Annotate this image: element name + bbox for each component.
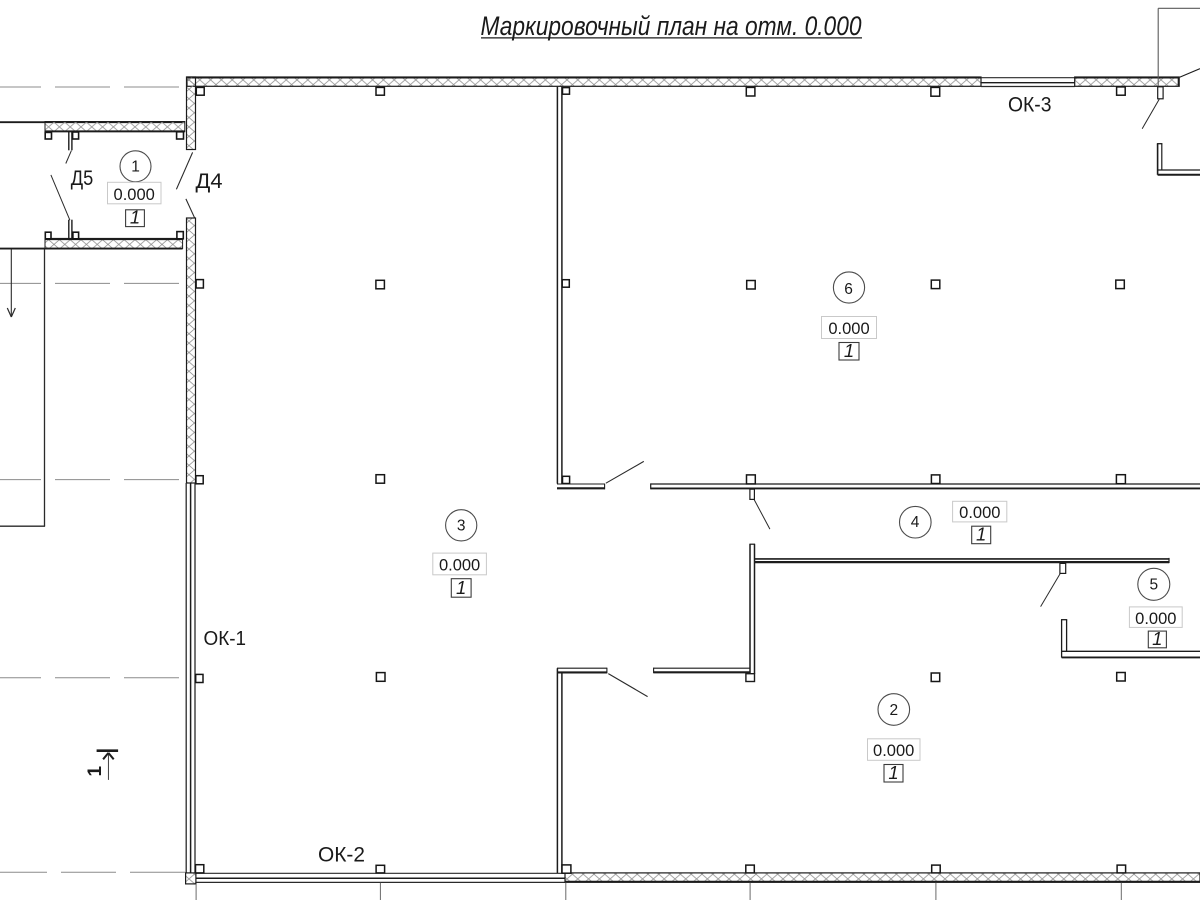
svg-text:1: 1	[888, 762, 898, 783]
svg-text:1: 1	[85, 766, 106, 777]
svg-text:1: 1	[456, 577, 466, 598]
svg-text:ОК-2: ОК-2	[318, 844, 365, 867]
svg-text:0.000: 0.000	[1135, 610, 1176, 628]
svg-text:ОК-3: ОК-3	[1008, 94, 1052, 117]
svg-text:4: 4	[911, 514, 920, 531]
svg-text:0.000: 0.000	[828, 320, 869, 338]
svg-text:6: 6	[844, 281, 853, 298]
svg-text:2: 2	[889, 702, 898, 719]
svg-text:Д5: Д5	[71, 167, 94, 190]
svg-text:0.000: 0.000	[959, 504, 1000, 522]
svg-text:1: 1	[1152, 628, 1162, 649]
svg-text:Маркировочный план на отм. 0.0: Маркировочный план на отм. 0.000	[481, 11, 862, 41]
svg-text:1: 1	[131, 159, 140, 176]
svg-text:1: 1	[976, 524, 986, 545]
svg-text:1: 1	[844, 340, 854, 361]
svg-text:Д4: Д4	[196, 170, 223, 193]
svg-text:3: 3	[457, 518, 466, 535]
svg-text:5: 5	[1149, 577, 1158, 594]
svg-text:1: 1	[130, 207, 140, 228]
svg-text:0.000: 0.000	[114, 186, 155, 204]
svg-text:0.000: 0.000	[439, 557, 480, 575]
svg-text:0.000: 0.000	[873, 742, 914, 760]
svg-text:ОК-1: ОК-1	[204, 627, 247, 650]
